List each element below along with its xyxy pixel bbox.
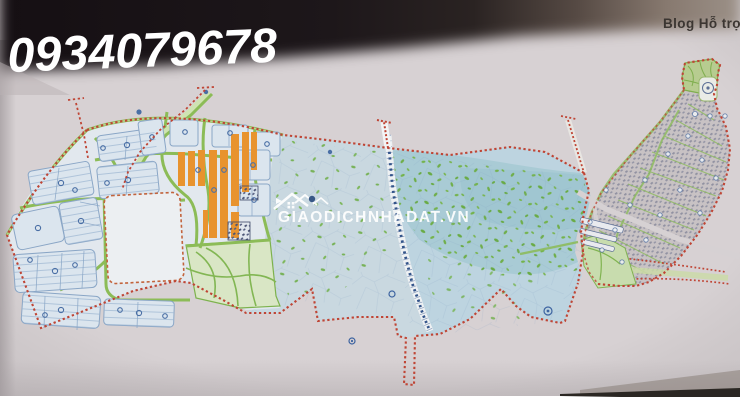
svg-text:Blog Hỗ trợ: Blog Hỗ trợ [663,16,740,31]
svg-text:0934079678: 0934079678 [6,19,278,83]
svg-text:GIAODICHNHADAT.VN: GIAODICHNHADAT.VN [278,209,470,226]
